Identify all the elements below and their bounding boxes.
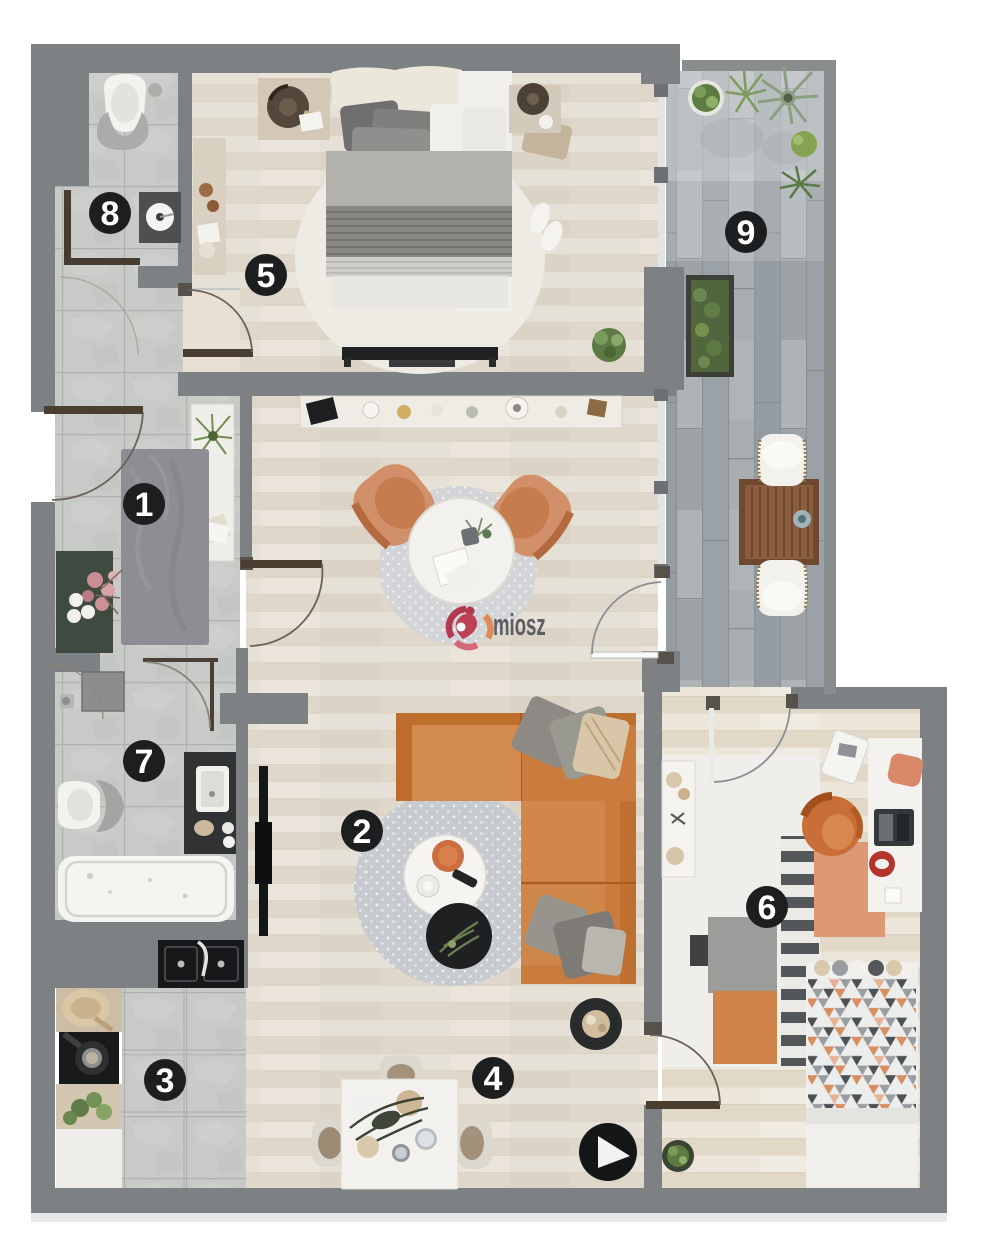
- svg-text:8: 8: [101, 195, 120, 233]
- svg-text:9: 9: [737, 214, 756, 252]
- svg-text:5: 5: [257, 257, 276, 295]
- svg-text:3: 3: [156, 1062, 175, 1100]
- svg-text:7: 7: [135, 743, 154, 781]
- svg-text:miosz: miosz: [493, 608, 546, 642]
- svg-text:4: 4: [484, 1060, 503, 1098]
- svg-text:6: 6: [758, 889, 777, 927]
- svg-text:2: 2: [353, 813, 372, 851]
- svg-text:1: 1: [135, 486, 154, 524]
